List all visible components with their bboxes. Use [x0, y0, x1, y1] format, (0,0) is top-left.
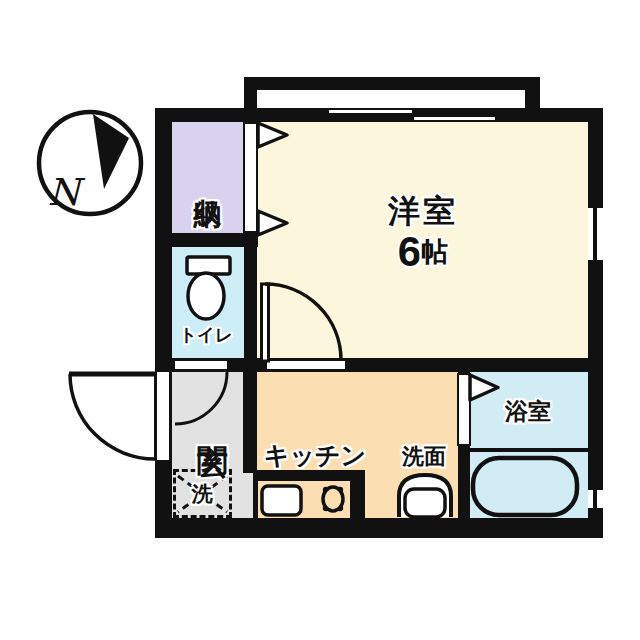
western-room-door-leaf [262, 284, 269, 361]
storage-door-triangle-bottom [258, 211, 287, 235]
western-room-size: 6帖 [323, 230, 523, 274]
storage-door-triangle-top [258, 123, 287, 147]
kitchen-label: キッチン [245, 442, 385, 468]
entrance-door-arc [70, 374, 155, 459]
kitchen-sink-icon [262, 486, 301, 515]
fixtures-layer [0, 0, 640, 640]
stove-burner-icon [323, 487, 343, 511]
size-value: 6 [398, 228, 421, 276]
bathroom-label: 浴室 [488, 399, 568, 424]
entrance-label: 玄関 [194, 386, 230, 458]
floor-plan: 収納 トイレ 洋室 6帖 玄関 洗 キッチン 洗面 浴室 N [0, 0, 640, 640]
western-room-door-arc [265, 284, 341, 360]
washstand-label: 洗面 [384, 445, 464, 469]
laundry-label: 洗 [172, 482, 232, 506]
size-unit: 帖 [421, 234, 448, 270]
toilet-bowl-icon [188, 273, 224, 319]
bathtub-icon [473, 458, 577, 515]
bathroom-door-triangle [470, 375, 498, 400]
storage-label: 収納 [190, 146, 224, 210]
toilet-label: トイレ [165, 326, 247, 344]
western-room-label: 洋室 [323, 194, 523, 230]
compass-north-label: N [40, 170, 88, 214]
